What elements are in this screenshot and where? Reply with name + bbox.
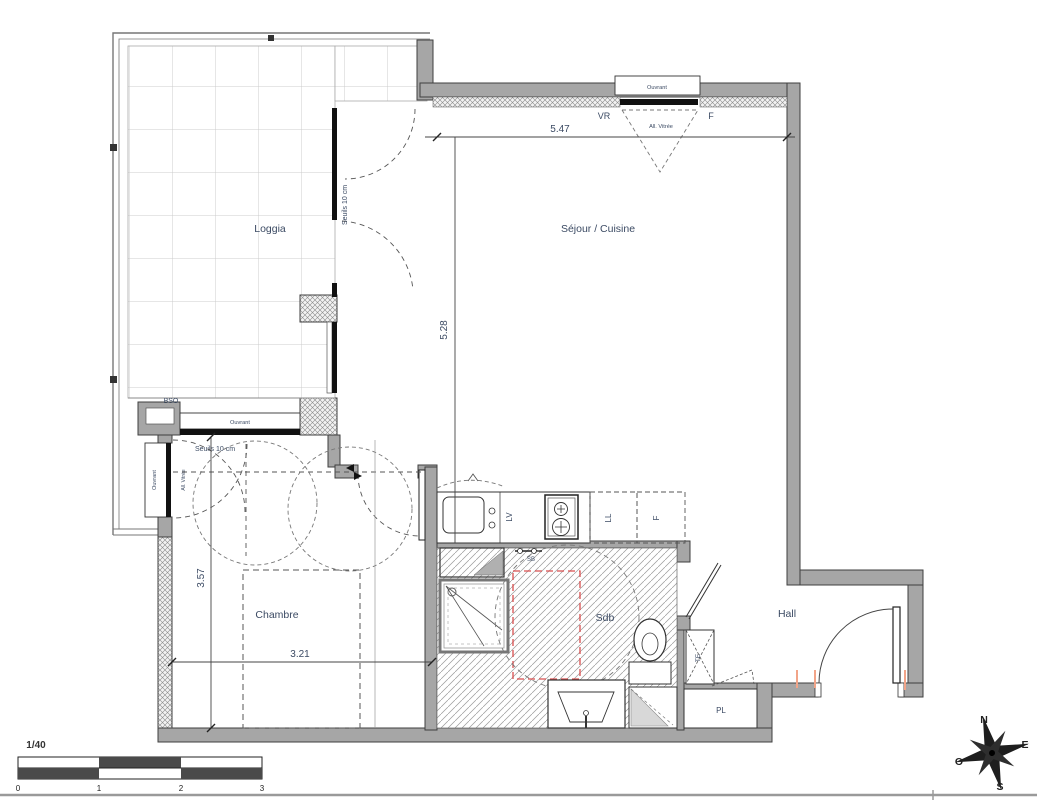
hall: Hall	[778, 607, 905, 690]
window-ouvrant-label: Ouvrant	[230, 420, 250, 426]
window-f-label: F	[708, 111, 714, 121]
dim-sejour-width: 5.47	[550, 124, 570, 135]
compass-east: E	[1021, 739, 1028, 751]
hall-label: Hall	[778, 608, 796, 620]
fridge-label: F	[652, 515, 661, 520]
kitchen-sink	[443, 497, 484, 533]
window-ouvrant-label: Ouvrant	[152, 470, 158, 490]
loggia-floor-tiles	[128, 46, 427, 398]
floor-plan-page: Ouvrant VR F All. Vitrée Seuils 10 cm Ou…	[0, 0, 1037, 800]
compass-rose: N E S O	[946, 707, 1037, 799]
seuils-label-vertical: Seuils 10 cm	[342, 185, 349, 225]
sb-label: SB	[527, 557, 535, 563]
washbasin	[548, 680, 625, 728]
scale-tick-3: 3	[260, 784, 265, 793]
bathroom-door	[686, 563, 721, 619]
scale-tick-2: 2	[179, 784, 184, 793]
chambre-west-window: Ouvrant All. Vitrée	[145, 443, 187, 517]
electrical-closet: TE	[686, 630, 714, 684]
floor-plan-drawing: Ouvrant VR F All. Vitrée Seuils 10 cm Ou…	[0, 0, 1037, 800]
loggia-label: Loggia	[254, 223, 286, 235]
bathroom-cabinet-bottom	[629, 687, 677, 728]
dim-sejour-height: 5.28	[439, 320, 450, 340]
bathroom-cabinet-top	[440, 548, 504, 577]
dishwasher-label: LV	[505, 512, 514, 522]
entrance-door-swing	[819, 609, 893, 683]
cooktop	[545, 495, 578, 539]
bathroom-label: Sdb	[596, 612, 615, 624]
loggia-sejour-glazing: Seuils 10 cm	[327, 108, 415, 393]
window-ouvrant-label: Ouvrant	[647, 85, 667, 91]
bso-label: BSO	[164, 398, 179, 405]
chambre-label: Chambre	[255, 609, 298, 621]
scale-tick-0: 0	[16, 784, 21, 793]
sejour-north-window: Ouvrant VR F All. Vitrée	[598, 76, 715, 172]
scale-bar: 1/40 0 1 2 3	[16, 740, 265, 793]
compass-north: N	[980, 714, 988, 726]
window-allege-label: All. Vitrée	[649, 124, 673, 130]
scale-tick-1: 1	[97, 784, 102, 793]
compass-south: S	[996, 781, 1003, 793]
washer-label: LL	[604, 513, 613, 522]
washer-slot	[590, 492, 637, 543]
te-label: TE	[695, 653, 702, 662]
shower	[440, 580, 508, 652]
pl-label: PL	[716, 706, 726, 715]
page-border	[0, 790, 1037, 800]
sejour-label: Séjour / Cuisine	[561, 223, 635, 235]
kitchen-counter: LV LL F	[437, 474, 685, 543]
scale-ratio: 1/40	[26, 740, 46, 751]
dim-chambre-width: 3.21	[290, 649, 310, 660]
seuils-label-horizontal: Seuils 10 cm	[195, 446, 235, 453]
window-vr-label: VR	[598, 111, 611, 121]
fridge-slot	[637, 492, 685, 543]
entrance-door-leaf	[893, 607, 900, 683]
dim-chambre-height: 3.57	[196, 568, 207, 588]
compass-west: O	[955, 756, 963, 768]
